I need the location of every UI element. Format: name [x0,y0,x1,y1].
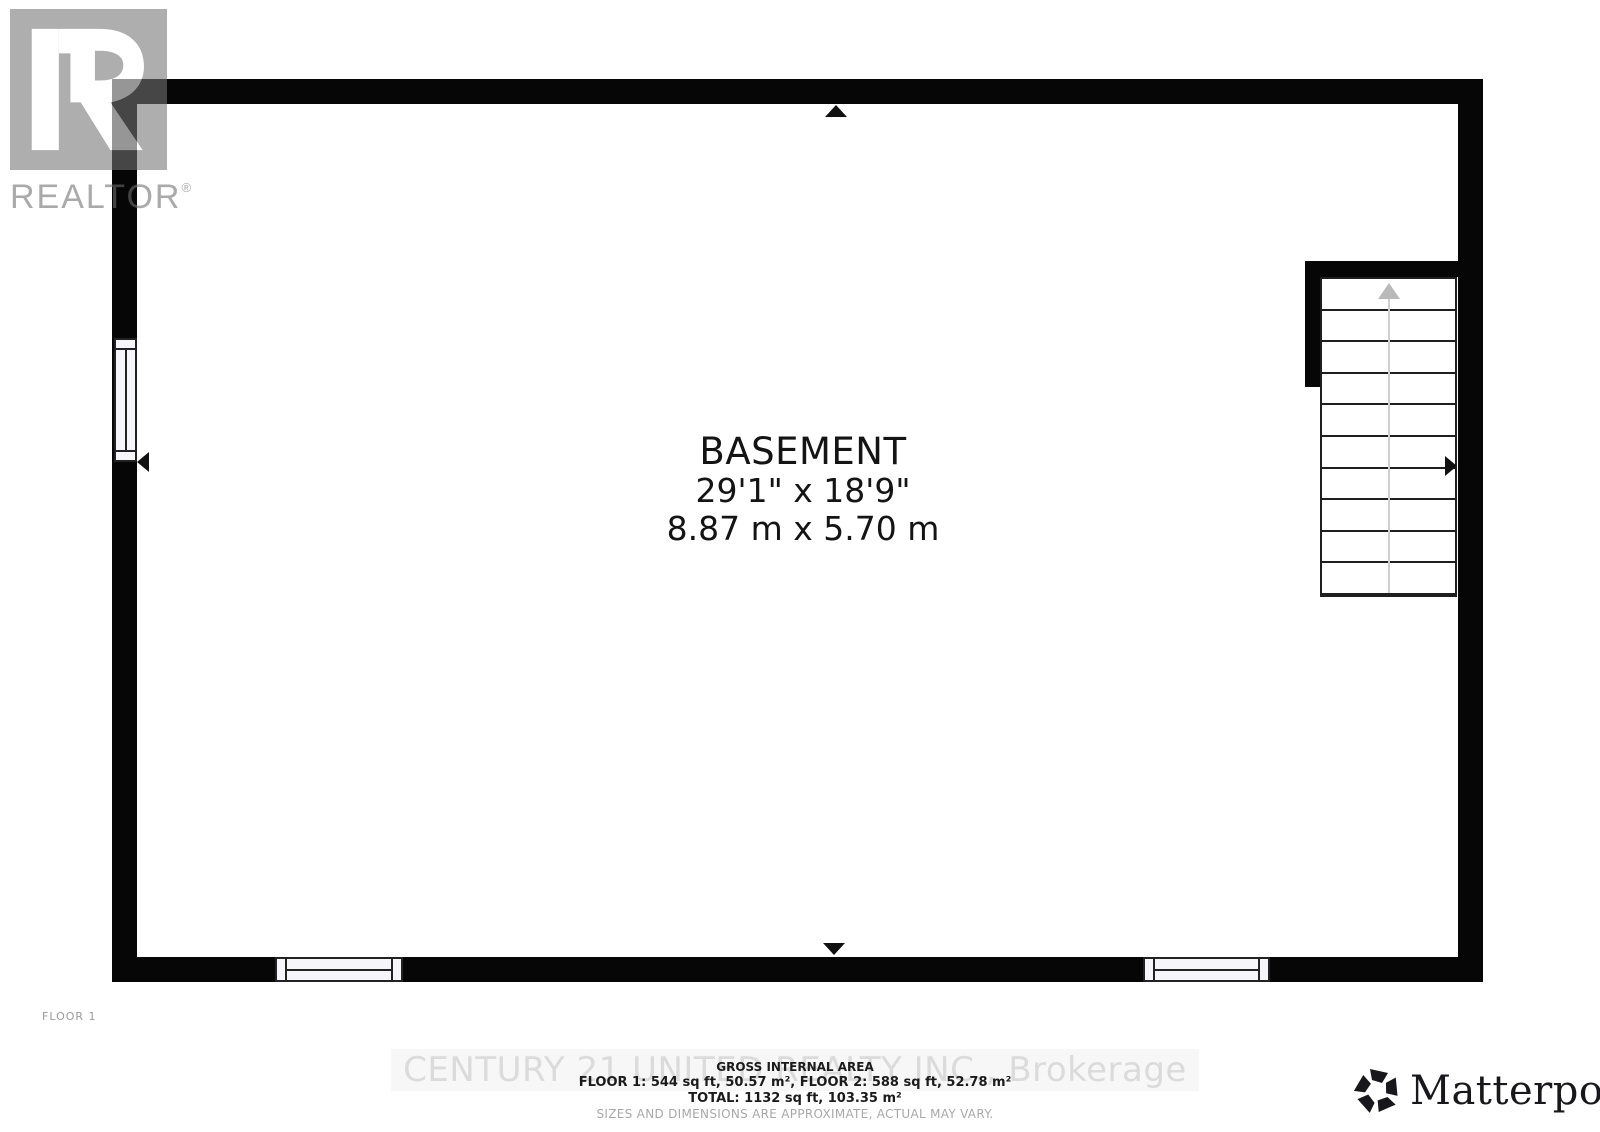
stair-direction-line [1388,295,1390,593]
window-frame-line [116,450,135,452]
realtor-logo [10,9,167,170]
room-name: BASEMENT [667,432,940,472]
wall-marker-left-icon [137,452,149,472]
disclaimer-text: SIZES AND DIMENSIONS ARE APPROXIMATE, AC… [596,1107,993,1121]
registered-mark: ® [181,180,191,195]
window-frame-line [125,350,127,450]
total-area-line: TOTAL: 1132 sq ft, 103.35 m² [688,1091,901,1106]
staircase [1320,277,1457,597]
matterport-logo: Matterport® [1354,1068,1600,1114]
stair-wall-top [1305,261,1458,277]
wall-marker-right-icon [1445,456,1457,476]
room-size-metric: 8.87 m x 5.70 m [667,510,940,548]
realtor-r-icon [24,21,153,158]
wall-marker-top-icon [825,105,847,117]
room-label: BASEMENT 29'1" x 18'9" 8.87 m x 5.70 m [667,432,940,548]
stair-wall-left [1305,261,1320,387]
gross-area-title: GROSS INTERNAL AREA [716,1060,874,1074]
realtor-watermark: REALTOR® [10,9,191,217]
window-left-wall [114,338,137,462]
window-frame-line [286,969,392,971]
room-size-imperial: 29'1" x 18'9" [667,472,940,510]
floor-areas-line: FLOOR 1: 544 sq ft, 50.57 m², FLOOR 2: 5… [579,1075,1012,1090]
floorplan-canvas: BASEMENT 29'1" x 18'9" 8.87 m x 5.70 m R… [0,0,1600,1132]
matterport-wordmark: Matterport® [1410,1068,1600,1114]
stair-up-arrow-icon [1378,283,1400,299]
matterport-pinwheel-icon [1354,1068,1400,1114]
floor-label: FLOOR 1 [42,1010,97,1023]
window-bottom-right [1143,957,1270,982]
window-frame-line [1154,969,1259,971]
realtor-wordmark: REALTOR® [10,178,191,217]
wall-marker-bottom-icon [823,943,845,955]
window-bottom-left [275,957,403,982]
